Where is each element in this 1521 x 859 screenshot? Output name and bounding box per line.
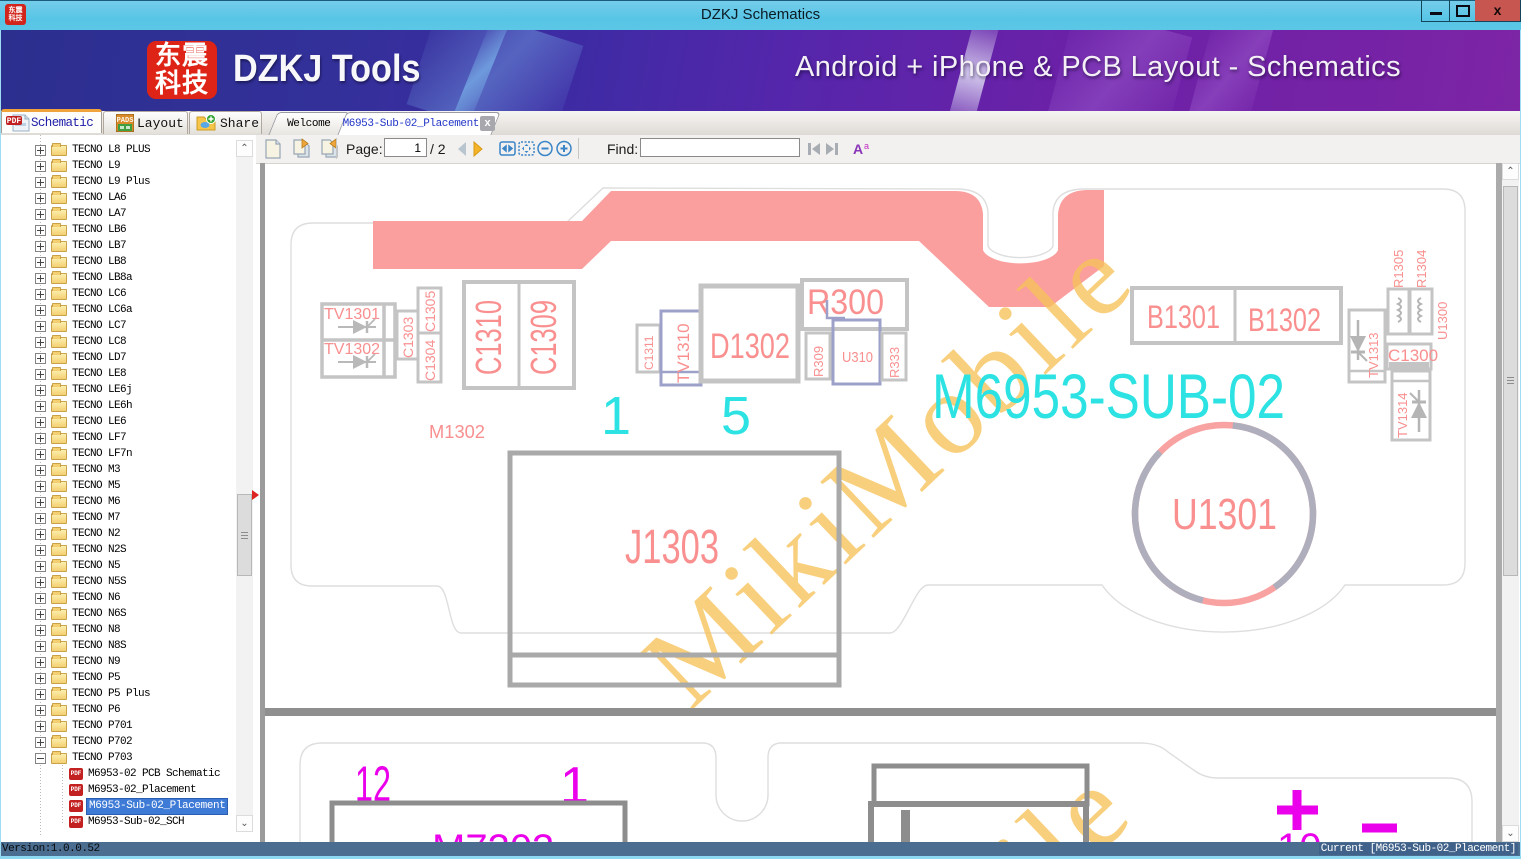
svg-text:C1310: C1310	[468, 300, 509, 375]
svg-text:R1305: R1305	[1391, 250, 1406, 288]
svg-text:C1303: C1303	[400, 317, 416, 358]
svg-text:R309: R309	[811, 346, 826, 377]
svg-text:C1305: C1305	[422, 291, 438, 332]
svg-text:TV1302: TV1302	[324, 341, 380, 358]
svg-text:PADS: PADS	[117, 117, 134, 125]
svg-text:M6953-SUB-02: M6953-SUB-02	[932, 362, 1285, 432]
svg-text:J1303: J1303	[625, 521, 719, 574]
svg-text:R1304: R1304	[1414, 250, 1429, 288]
svg-text:U1301: U1301	[1172, 490, 1277, 539]
svg-text:a: a	[864, 141, 869, 151]
svg-text:U310: U310	[842, 349, 873, 366]
svg-text:5: 5	[721, 386, 751, 446]
svg-text:TV1301: TV1301	[324, 306, 380, 323]
svg-text:C1300: C1300	[1388, 346, 1438, 365]
svg-text:M1302: M1302	[429, 422, 485, 442]
svg-text:1: 1	[560, 757, 589, 815]
svg-text:PDF: PDF	[7, 117, 22, 126]
svg-text:B1302: B1302	[1248, 302, 1321, 338]
svg-text:A: A	[853, 141, 863, 157]
svg-text:U1300: U1300	[1435, 302, 1450, 340]
svg-text:TV1310: TV1310	[674, 323, 693, 383]
svg-text:10: 10	[1277, 826, 1322, 842]
svg-text:M7303: M7303	[432, 827, 554, 842]
svg-text:C1304: C1304	[422, 340, 438, 381]
svg-text:1: 1	[601, 386, 631, 446]
svg-text:TV1313: TV1313	[1366, 332, 1381, 378]
svg-text:R300: R300	[807, 283, 884, 322]
svg-text:C1311: C1311	[642, 335, 656, 370]
svg-text:MikiMobile: MikiMobile	[616, 741, 1156, 842]
svg-text:C1309: C1309	[523, 300, 564, 375]
svg-text:B1301: B1301	[1147, 299, 1220, 335]
svg-text:D1302: D1302	[710, 327, 790, 366]
svg-text:TV1314: TV1314	[1395, 392, 1410, 438]
svg-text:R333: R333	[887, 347, 902, 378]
